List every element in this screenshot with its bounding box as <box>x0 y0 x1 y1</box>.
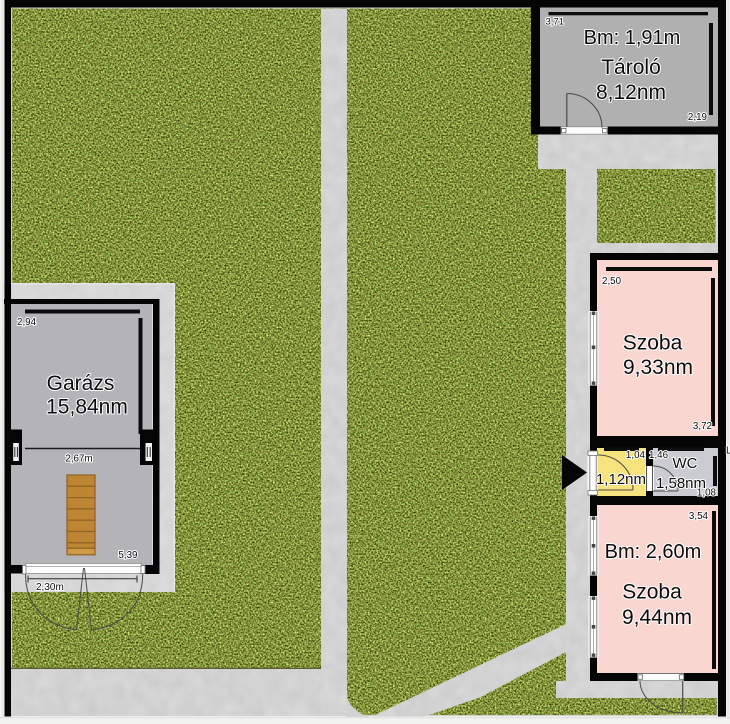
svg-text:3,71: 3,71 <box>546 17 565 28</box>
svg-text:5,39: 5,39 <box>118 550 137 561</box>
svg-text:8,12nm: 8,12nm <box>596 81 666 104</box>
svg-text:1,12nm: 1,12nm <box>596 471 646 488</box>
svg-text:Garázs: Garázs <box>47 372 115 395</box>
svg-text:Szoba: Szoba <box>623 332 683 355</box>
svg-text:Bm: 1,91m: Bm: 1,91m <box>584 27 681 49</box>
svg-text:Tároló: Tároló <box>601 56 661 79</box>
svg-text:L: L <box>726 446 730 457</box>
svg-text:3,54: 3,54 <box>689 511 709 522</box>
svg-text:9,44nm: 9,44nm <box>622 606 692 629</box>
svg-text:15,84nm: 15,84nm <box>46 396 128 419</box>
svg-text:1,08: 1,08 <box>697 488 717 499</box>
svg-text:1,04: 1,04 <box>626 450 646 461</box>
svg-text:WC: WC <box>673 455 698 472</box>
svg-text:Bm: 2,60m: Bm: 2,60m <box>605 541 702 563</box>
svg-text:2,50: 2,50 <box>602 276 622 287</box>
svg-text:1,46: 1,46 <box>649 450 669 461</box>
svg-text:3,72: 3,72 <box>693 421 712 432</box>
svg-text:2,30m: 2,30m <box>36 582 64 593</box>
svg-text:2,19: 2,19 <box>688 112 707 123</box>
svg-text:9,33nm: 9,33nm <box>623 356 693 379</box>
svg-text:2,94: 2,94 <box>17 317 37 328</box>
svg-text:2,67m: 2,67m <box>65 454 92 465</box>
svg-text:Szoba: Szoba <box>622 581 682 604</box>
